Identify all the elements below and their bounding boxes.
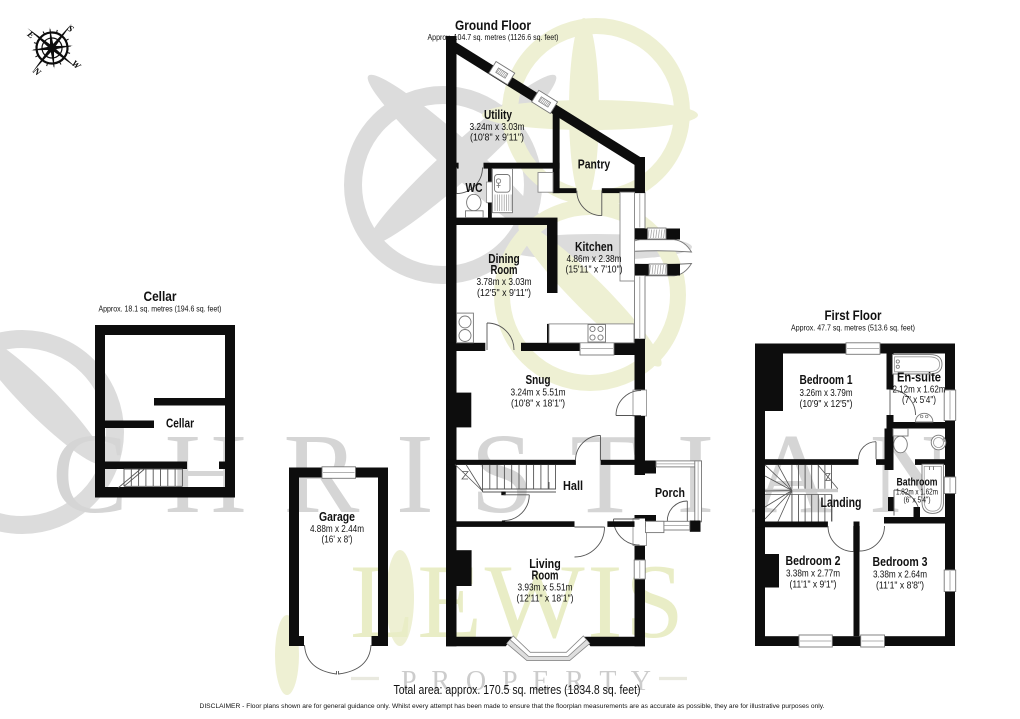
svg-text:Approx. 18.1 sq. metres (194.6: Approx. 18.1 sq. metres (194.6 sq. feet) — [99, 305, 222, 314]
svg-text:3.78m x 3.03m: 3.78m x 3.03m — [477, 277, 532, 288]
svg-text:En-suite: En-suite — [897, 370, 941, 385]
svg-text:(11'1" x 9'1"): (11'1" x 9'1") — [790, 580, 837, 591]
svg-text:First Floor: First Floor — [825, 308, 883, 323]
svg-text:Approx. 47.7 sq. metres (513.6: Approx. 47.7 sq. metres (513.6 sq. feet) — [791, 324, 915, 333]
svg-text:4.86m x 2.38m: 4.86m x 2.38m — [567, 254, 622, 265]
svg-text:WC: WC — [466, 180, 483, 195]
svg-text:Kitchen: Kitchen — [575, 239, 613, 254]
svg-text:2.12m x 1.62m: 2.12m x 1.62m — [893, 385, 946, 396]
svg-text:(6' x 5'4"): (6' x 5'4") — [904, 495, 931, 505]
svg-text:Cellar: Cellar — [144, 289, 178, 304]
svg-text:Landing: Landing — [821, 495, 862, 510]
svg-text:(10'8" x 18'1"): (10'8" x 18'1") — [511, 399, 565, 410]
svg-text:Garage: Garage — [319, 509, 355, 524]
svg-text:Hall: Hall — [563, 478, 583, 493]
svg-text:(12'5" x 9'11"): (12'5" x 9'11") — [477, 288, 531, 299]
svg-text:3.24m x 3.03m: 3.24m x 3.03m — [470, 122, 525, 133]
svg-text:3.38m x 2.77m: 3.38m x 2.77m — [786, 569, 840, 580]
svg-text:Bedroom 3: Bedroom 3 — [873, 554, 928, 569]
svg-text:Room: Room — [532, 568, 559, 583]
svg-text:Ground Floor: Ground Floor — [455, 18, 532, 33]
svg-text:Porch: Porch — [655, 485, 685, 500]
svg-text:3.93m x 5.51m: 3.93m x 5.51m — [518, 583, 573, 594]
svg-text:3.38m x 2.64m: 3.38m x 2.64m — [873, 570, 927, 581]
svg-text:(7' x 5'4"): (7' x 5'4") — [902, 395, 936, 406]
svg-text:Room: Room — [491, 262, 518, 277]
svg-text:Bedroom 2: Bedroom 2 — [786, 553, 841, 568]
svg-text:4.88m x 2.44m: 4.88m x 2.44m — [310, 524, 364, 535]
svg-text:Cellar: Cellar — [166, 416, 194, 431]
svg-text:DISCLAIMER - Floor plans show: DISCLAIMER - Floor plans shown are for g… — [200, 703, 825, 710]
svg-text:Utility: Utility — [484, 107, 513, 122]
svg-text:(16' x 8'): (16' x 8') — [322, 535, 353, 546]
svg-text:3.24m x 5.51m: 3.24m x 5.51m — [511, 388, 566, 399]
svg-text:Pantry: Pantry — [578, 157, 611, 172]
svg-text:(10'8" x 9'11"): (10'8" x 9'11") — [470, 133, 524, 144]
svg-text:(11'1" x 8'8"): (11'1" x 8'8") — [876, 581, 924, 592]
svg-text:3.26m x 3.79m: 3.26m x 3.79m — [800, 388, 853, 399]
svg-text:Bedroom 1: Bedroom 1 — [800, 372, 853, 387]
svg-text:Total area: approx. 170.5 sq.: Total area: approx. 170.5 sq. metres (18… — [394, 683, 641, 697]
svg-text:(15'11" x 7'10"): (15'11" x 7'10") — [566, 265, 623, 276]
svg-text:(12'11" x 18'1"): (12'11" x 18'1") — [517, 594, 574, 605]
svg-text:Snug: Snug — [526, 372, 551, 387]
svg-text:(10'9" x 12'5"): (10'9" x 12'5") — [800, 399, 853, 410]
